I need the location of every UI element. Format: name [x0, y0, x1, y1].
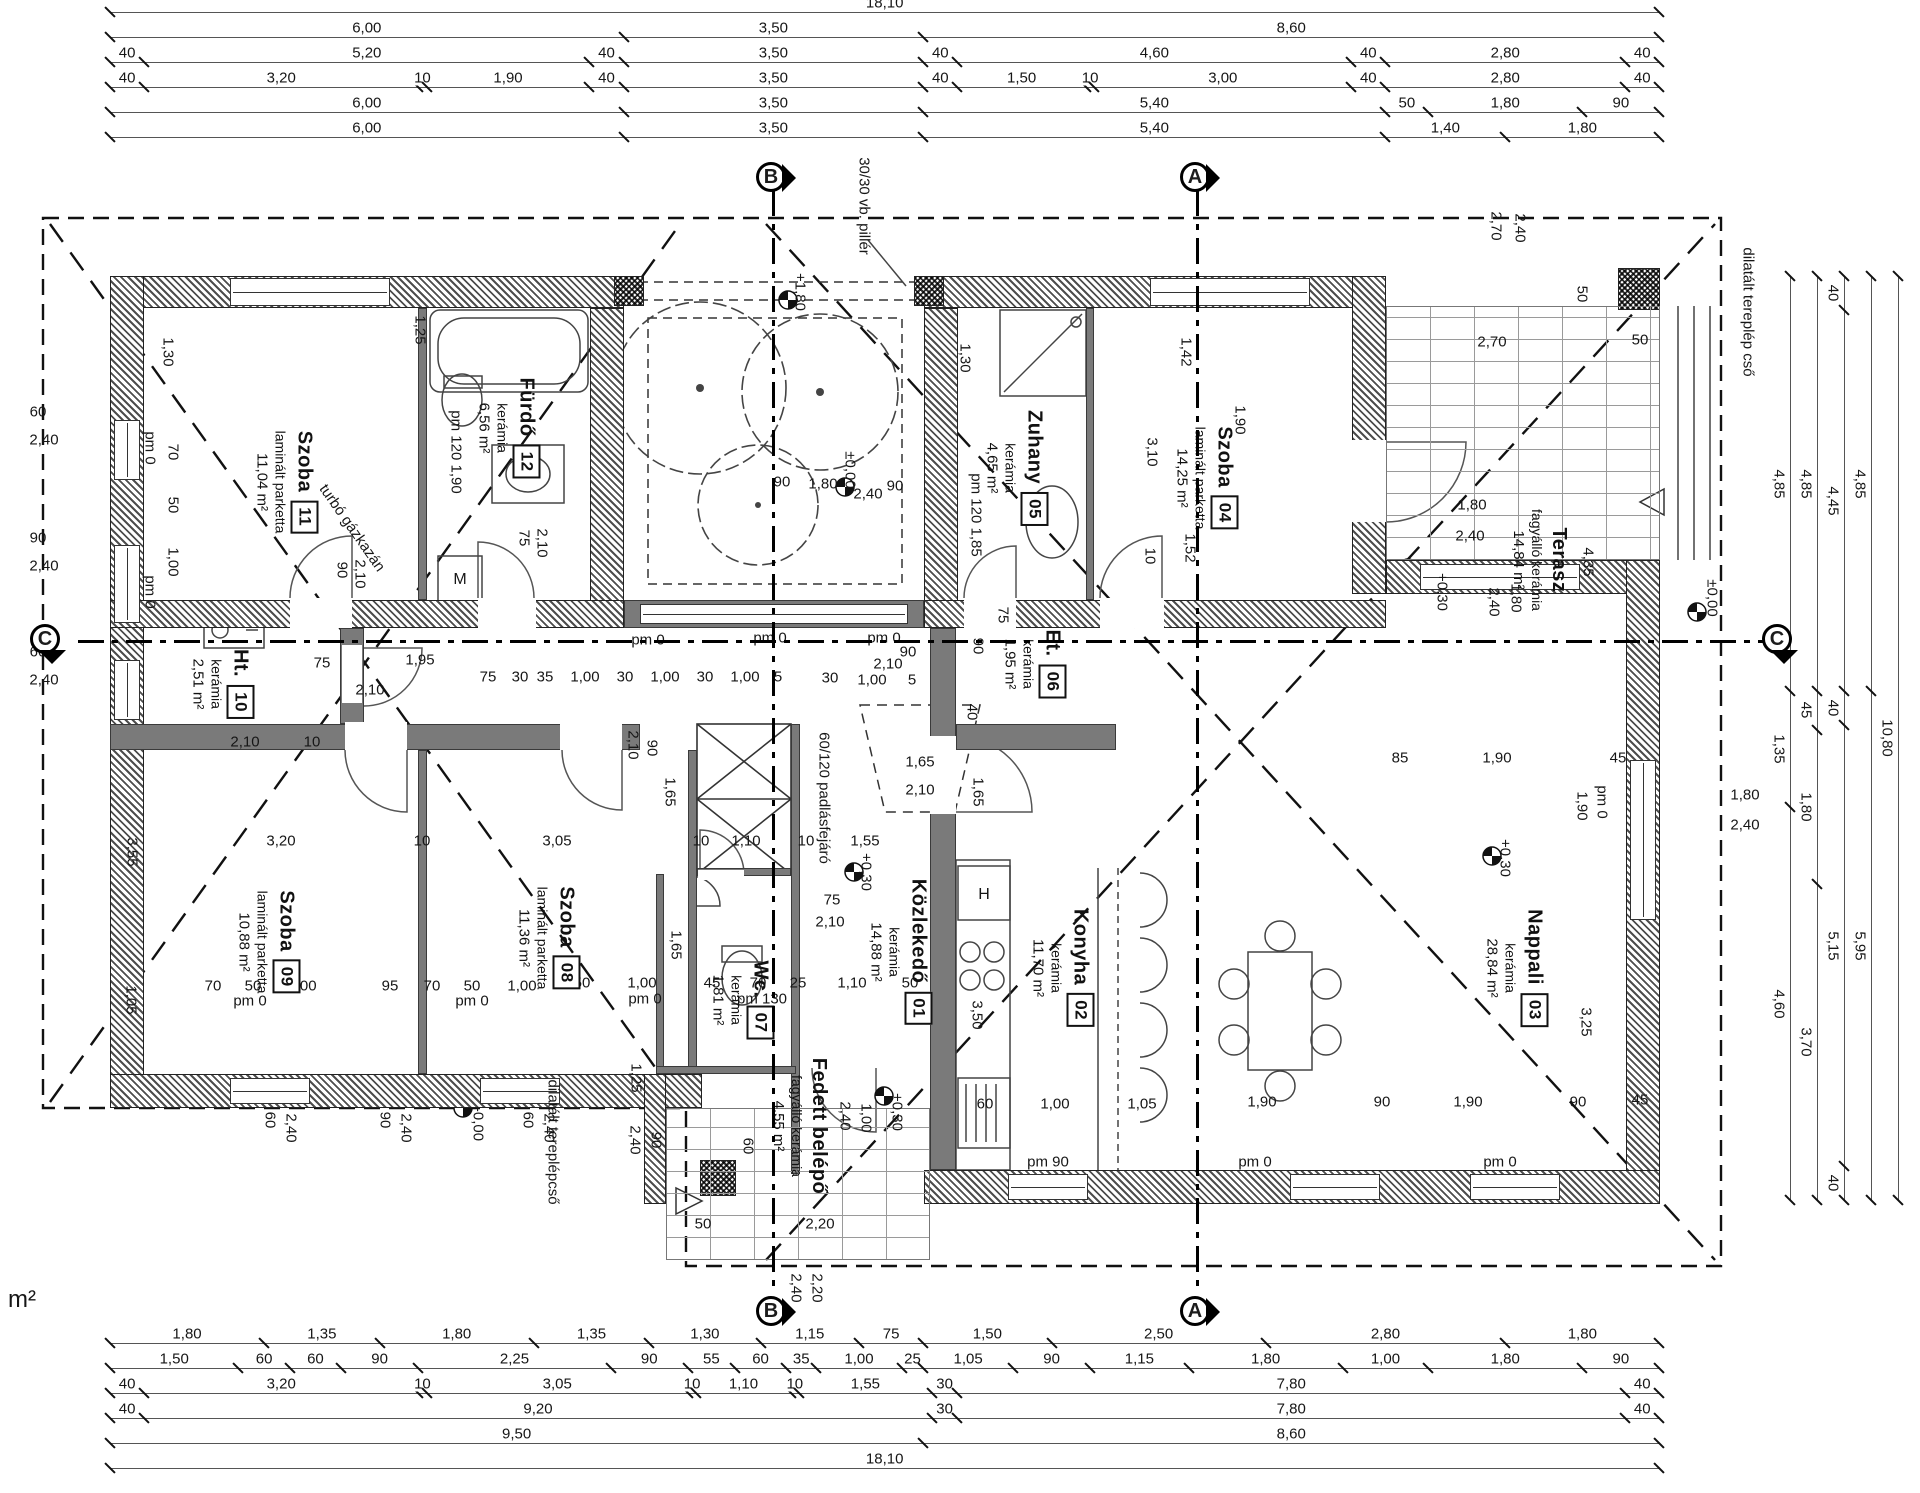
dim-label: 3,70 [1799, 1026, 1814, 1059]
room-area: 28,84 m² [1484, 909, 1501, 1027]
room-number-box: 05 [1021, 492, 1049, 526]
dim-label: 1,10 [727, 1377, 760, 1392]
annotation: 1,65 [669, 930, 684, 959]
dim-label: 1,80 [1799, 790, 1814, 823]
window [1150, 278, 1310, 306]
axis-line [78, 640, 1768, 643]
annotation: -0,00 [471, 1107, 486, 1141]
annotation: 3,55 [125, 837, 140, 866]
annotation: 1,42 [1179, 337, 1194, 366]
window [114, 660, 140, 720]
annotation: 90 [378, 1112, 393, 1129]
wall-segment [956, 724, 1116, 750]
room-area: 6,56 m² [476, 377, 493, 478]
dimension-chain [110, 87, 1659, 88]
annotation: 3,50 [970, 1000, 985, 1029]
tree-symbols [614, 302, 898, 565]
axis-marker-C: C [30, 624, 64, 658]
annotation: 1,90 [1482, 751, 1511, 766]
annotation: pm 0 [233, 994, 266, 1009]
dim-label: 40 [1632, 1402, 1653, 1417]
dim-label: 1,80 [440, 1327, 473, 1342]
annotation: pm 0 [867, 631, 900, 646]
door-opening [560, 722, 622, 750]
annotation: 50 [695, 1217, 712, 1232]
annotation: +0,30 [1435, 573, 1450, 611]
annotation: 1,00 [570, 670, 599, 685]
annotation: 50 [1575, 286, 1590, 303]
pillar [614, 276, 644, 306]
dimension-chain [1844, 276, 1845, 1200]
door-arcs [290, 442, 1466, 1132]
dim-label: 8,60 [1275, 21, 1308, 36]
annotation: 10 [304, 735, 321, 750]
annotation: 1,65 [663, 777, 678, 806]
window [114, 545, 140, 623]
dim-label: 1,80 [170, 1327, 203, 1342]
annotation: 1,00 [166, 547, 181, 576]
room-label: Szoba04laminált parketta14,25 m² [1174, 426, 1239, 529]
door-opening [1100, 598, 1164, 628]
annotation: pm 0 [143, 431, 158, 464]
dim-label: 4,85 [1853, 467, 1868, 500]
dim-label: 9,50 [500, 1427, 533, 1442]
dim-label: 40 [1632, 71, 1653, 86]
annotation: M [453, 572, 466, 588]
room-label: Ht.10kerámia2,51 m² [190, 649, 255, 719]
annotation: 60 [977, 1097, 994, 1112]
annotation: 75 [480, 670, 497, 685]
annotation: 95 [382, 979, 399, 994]
annotation: 5 [774, 670, 782, 685]
dim-label: 1,50 [971, 1327, 1004, 1342]
dim-label: 40 [930, 71, 951, 86]
dimension-chain [110, 1343, 1659, 1344]
axis-line [772, 190, 775, 1292]
annotation: 1,30 [958, 343, 973, 372]
wall-segment [688, 750, 697, 1074]
annotation: 1,80 [808, 477, 837, 492]
pillar [1618, 268, 1660, 310]
dim-label: 90 [369, 1352, 390, 1367]
dim-label: 40 [1358, 71, 1379, 86]
room-area: 11,36 m² [516, 886, 533, 989]
annotation: 30 [697, 670, 714, 685]
annotation: 2,10 [626, 730, 641, 759]
annotation: 10 [1143, 548, 1158, 565]
wall-segment [110, 1074, 702, 1108]
wall-segment [1352, 276, 1386, 594]
room-finish: laminált parketta [1193, 426, 1209, 529]
dim-label: 3,20 [265, 71, 298, 86]
dim-label: 1,80 [1566, 1327, 1599, 1342]
room-number-box: 11 [291, 500, 319, 533]
annotation: 90 [887, 479, 904, 494]
dim-label: 1,40 [1429, 121, 1462, 136]
annotation: 90 [645, 740, 660, 757]
dimension-chain [110, 12, 1659, 13]
annotation: 2,10 [230, 735, 259, 750]
room-finish: kerámia [495, 377, 511, 478]
axis-flag-icon [1770, 650, 1798, 664]
dim-label: 40 [596, 46, 617, 61]
dim-label: 1,35 [305, 1327, 338, 1342]
dim-label: 5,95 [1853, 929, 1868, 962]
wall-segment [930, 628, 956, 1170]
room-label: Zuhany05kerámia4,65 m² [984, 410, 1049, 526]
annotation: +1,80 [793, 273, 808, 311]
dim-label: 4,60 [1138, 46, 1171, 61]
dim-label: 40 [1632, 1377, 1653, 1392]
axis-marker-B: B [756, 1296, 790, 1330]
annotation: +0,30 [890, 1093, 905, 1131]
room-name: Szoba04 [1211, 426, 1239, 529]
window [1008, 1174, 1088, 1200]
annotation: 35 [537, 670, 554, 685]
axis-flag-icon [38, 650, 66, 664]
dim-label: 60 [305, 1352, 326, 1367]
annotation: 2,70 [1489, 211, 1504, 240]
dim-label: 1,15 [793, 1327, 826, 1342]
room-name: Szoba11 [291, 431, 319, 534]
room-label: Fürdő12kerámia6,56 m² [476, 377, 541, 478]
wall-segment [1086, 308, 1094, 600]
pillar [914, 276, 944, 306]
annotation: 2,40 [284, 1113, 299, 1142]
annotation: +0,30 [1498, 839, 1513, 877]
annotation: 60/120 padlásfejáró [817, 732, 832, 864]
room-label: Szoba11laminált parketta11,04 m² [254, 431, 319, 534]
dim-label: 1,50 [158, 1352, 191, 1367]
annotation: 2,10 [873, 657, 902, 672]
dim-label: 1,80 [1566, 121, 1599, 136]
annotation: 3,25 [1579, 1007, 1594, 1036]
dim-label: 40 [117, 1402, 138, 1417]
room-name: Konyha02 [1067, 909, 1095, 1027]
attic-shaft [697, 724, 791, 874]
dimension-chain [110, 1443, 1659, 1444]
door-opening [290, 598, 352, 628]
annotation: 2,10 [535, 528, 550, 557]
room-label: Szoba09laminált parketta10,88 m² [236, 890, 301, 993]
room-finish: kerámia [1049, 909, 1065, 1027]
annotation: pm 120 1,90 [449, 410, 464, 493]
annotation: 50 [166, 497, 181, 514]
room-name: Ht.10 [227, 649, 255, 719]
dimension-chain [1790, 276, 1791, 1200]
dim-label: 1,90 [491, 71, 524, 86]
window [230, 1078, 310, 1104]
door-opening [930, 736, 956, 814]
axis-marker-C: C [1762, 624, 1796, 658]
annotation: 25 [790, 976, 807, 991]
dim-label: 18,10 [864, 0, 906, 11]
wall-segment [110, 600, 624, 628]
room-finish: kerámia [1003, 410, 1019, 526]
annotation: 1,65 [971, 777, 986, 806]
axis-line [1196, 190, 1199, 1292]
annotation: pm 120 1,85 [969, 473, 984, 556]
annotation: 1,55 [850, 834, 879, 849]
dim-label: 4,60 [1772, 987, 1787, 1020]
dim-label: 1,55 [849, 1377, 882, 1392]
window [1470, 1174, 1560, 1200]
wall-segment [656, 874, 664, 1074]
room-area: 11,70 m² [1030, 909, 1047, 1027]
annotation: 1,90 [1453, 1095, 1482, 1110]
annotation: 5 [908, 673, 916, 688]
dim-label: 40 [596, 71, 617, 86]
annotation: 1,00 [650, 670, 679, 685]
annotation: 90 [30, 531, 47, 546]
annotation: 1,95 [405, 653, 434, 668]
window [1630, 760, 1656, 920]
annotation: 3,05 [542, 834, 571, 849]
annotation: 30/30 vb. pillér [857, 157, 872, 255]
annotation: 60 [521, 1112, 536, 1129]
dim-label: 1,80 [1489, 96, 1522, 111]
dim-label: 3,50 [757, 96, 790, 111]
dim-label: 40 [1826, 283, 1841, 304]
dim-label: 9,20 [521, 1402, 554, 1417]
axis-flag-icon [1206, 1298, 1220, 1326]
annotation: 30 [617, 670, 634, 685]
annotation: 45 [1632, 1093, 1649, 1108]
room-number-box: 01 [905, 991, 933, 1025]
annotation: 1,65 [905, 755, 934, 770]
annotation: 2,40 [628, 1125, 643, 1154]
dim-label: 40 [117, 1377, 138, 1392]
annotation: 30 [822, 671, 839, 686]
room-label: Fedett belépőfagyálló kerámia4,55 m² [770, 1058, 830, 1195]
dim-label: 1,05 [952, 1352, 985, 1367]
dimension-chain [1871, 276, 1872, 1200]
annotation: dilatált tereplép cső [1741, 247, 1756, 376]
annotation: 90 [774, 475, 791, 490]
annotation: 75 [996, 607, 1011, 624]
annotation: 75 [824, 893, 841, 908]
annotation: pm 90 [1027, 1155, 1069, 1170]
annotation: 30 [512, 670, 529, 685]
dimension-chain [110, 37, 1659, 38]
annotation: 60 [741, 1138, 756, 1155]
room-label: Konyha02kerámia11,70 m² [1030, 909, 1095, 1027]
annotation: 4,35 [1581, 547, 1596, 576]
room-area: 1,81 m² [710, 961, 727, 1040]
annotation: 1,00 [730, 670, 759, 685]
room-label: Wc.07kerámia1,81 m² [710, 961, 775, 1040]
dim-label: 3,50 [757, 71, 790, 86]
room-area: 11,04 m² [254, 431, 271, 534]
dimension-chain [110, 1393, 1659, 1394]
room-name: Fedett belépő [807, 1058, 830, 1195]
annotation: 10 [798, 834, 815, 849]
annotation: 70 [205, 979, 222, 994]
annotation: 2,40 [838, 1101, 853, 1130]
room-name: Fürdő12 [513, 377, 541, 478]
window [1290, 1174, 1380, 1200]
dim-label: 4,85 [1772, 467, 1787, 500]
annotation: 2,10 [905, 783, 934, 798]
annotation: 2,40 [29, 433, 58, 448]
annotation: 1,80 [1730, 788, 1759, 803]
floor-plan: 18,106,003,508,60405,20403,50404,60402,8… [0, 0, 1920, 1493]
room-name: Szoba09 [273, 890, 301, 993]
dim-label: 6,00 [350, 96, 383, 111]
axis-flag-icon [1206, 164, 1220, 192]
dim-label: 6,00 [350, 121, 383, 136]
annotation: 1,10 [731, 834, 760, 849]
window [114, 420, 140, 480]
dim-label: 4,85 [1799, 467, 1814, 500]
room-finish: kerámia [1503, 909, 1519, 1027]
annotation: 1,00 [1040, 1097, 1069, 1112]
dimension-chain [110, 1418, 1659, 1419]
dim-label: 3,05 [541, 1377, 574, 1392]
dim-label: 7,80 [1275, 1402, 1308, 1417]
annotation: 60 [30, 405, 47, 420]
annotation: 2,20 [805, 1217, 834, 1232]
dim-label: 3,00 [1206, 71, 1239, 86]
dimension-chain [110, 137, 1659, 138]
annotation: 3,10 [1145, 437, 1160, 466]
dim-label: 4,45 [1826, 484, 1841, 517]
dim-label: 1,50 [1005, 71, 1038, 86]
annotation: 70 [166, 444, 181, 461]
room-area: 14,25 m² [1174, 426, 1191, 529]
annotation: 1,80 [1457, 498, 1486, 513]
annotation: ±0,00 [1705, 579, 1720, 616]
room-finish: fagyálló kerámia [1529, 509, 1545, 611]
room-area: 10,88 m² [236, 890, 253, 993]
dim-label: 75 [881, 1327, 902, 1342]
dim-label: 40 [117, 46, 138, 61]
dim-label: 50 [1396, 96, 1417, 111]
room-name: Zuhany05 [1021, 410, 1049, 526]
annotation: 1,25 [629, 1063, 644, 1092]
annotation: 2,40 [1455, 529, 1484, 544]
room-name: Terasz [1547, 509, 1570, 611]
wall-segment [418, 308, 427, 600]
room-name: Közlekedő01 [905, 879, 933, 1025]
annotation: 1,05 [1127, 1097, 1156, 1112]
room-name: Szoba08 [553, 886, 581, 989]
dim-label: 10,80 [1880, 717, 1895, 759]
annotation: m² [8, 1288, 36, 1312]
dim-label: 5,40 [1138, 121, 1171, 136]
dim-label: 3,50 [757, 46, 790, 61]
dim-label: 40 [1826, 1173, 1841, 1194]
annotation: 2,40 [853, 487, 882, 502]
dim-label: 2,50 [1142, 1327, 1175, 1342]
dim-label: 7,80 [1275, 1377, 1308, 1392]
room-finish: kerámia [729, 961, 745, 1040]
annotation: 1,00 [627, 976, 656, 991]
dim-label: 2,80 [1489, 71, 1522, 86]
room-finish: kerámia [209, 649, 225, 719]
annotation: pm 0 [628, 992, 661, 1007]
room-area: 14,84 m² [1510, 509, 1527, 611]
room-number-box: 04 [1211, 496, 1239, 530]
room-finish: kerámia [887, 879, 903, 1025]
dim-label: 40 [1826, 698, 1841, 719]
annotation: 10 [693, 834, 710, 849]
room-number-box: 03 [1521, 993, 1549, 1027]
annotation: 90 [1570, 1095, 1587, 1110]
annotation: 50 [1632, 333, 1649, 348]
annotation: 2,40 [1487, 587, 1502, 616]
annotation: 1,00 [859, 1103, 874, 1132]
dim-label: 1,00 [1369, 1352, 1402, 1367]
annotation: ±0,00 [843, 451, 858, 488]
door-opening [1352, 440, 1386, 522]
room-name: Wc.07 [747, 961, 775, 1040]
annotation: 2,40 [1513, 213, 1528, 242]
dim-label: 40 [930, 46, 951, 61]
annotation: 1,05 [124, 985, 139, 1014]
axis-flag-icon [782, 164, 796, 192]
dim-label: 1,80 [1249, 1352, 1282, 1367]
wall-segment [418, 750, 427, 1074]
annotation: 2,40 [399, 1113, 414, 1142]
door-opening [345, 722, 407, 750]
dim-label: 8,60 [1275, 1427, 1308, 1442]
dim-label: 2,25 [498, 1352, 531, 1367]
annotation: 1,25 [413, 315, 428, 344]
dim-label: 60 [254, 1352, 275, 1367]
room-number-box: 12 [513, 445, 541, 479]
room-label: Szoba08laminált parketta11,36 m² [516, 886, 581, 989]
annotation: pm 0 [455, 994, 488, 1009]
room-finish: laminált parketta [535, 886, 551, 989]
annotation: 1,90 [1247, 1095, 1276, 1110]
dim-label: 2,80 [1489, 46, 1522, 61]
wall-segment [924, 308, 958, 608]
annotation: 85 [1392, 751, 1409, 766]
room-number-box: 10 [227, 685, 255, 719]
dim-label: 1,35 [1772, 732, 1787, 765]
dim-label: 45 [1799, 700, 1814, 721]
dim-label: 6,00 [350, 21, 383, 36]
dim-label: 40 [1632, 46, 1653, 61]
dim-label: 3,20 [265, 1377, 298, 1392]
wall-segment [590, 308, 624, 608]
annotation: 90 [335, 562, 350, 579]
dim-label: 1,00 [842, 1352, 875, 1367]
annotation: 2,40 [1730, 818, 1759, 833]
annotation: 90 [649, 1132, 664, 1149]
annotation: 10 [414, 834, 431, 849]
dim-label: 1,80 [1489, 1352, 1522, 1367]
door-opening [478, 598, 536, 628]
axis-flag-icon [782, 1298, 796, 1326]
room-area: 2,51 m² [190, 649, 207, 719]
annotation: pm 0 [1238, 1155, 1271, 1170]
dim-label: 5,20 [350, 46, 383, 61]
annotation: 1,00 [857, 673, 886, 688]
dim-label: 1,15 [1123, 1352, 1156, 1367]
dim-label: 90 [639, 1352, 660, 1367]
dim-label: 1,30 [688, 1327, 721, 1342]
annotation: 75 [517, 530, 532, 547]
annotation: pm 0 [1595, 785, 1610, 818]
annotation: 1,30 [161, 337, 176, 366]
annotation: pm 0 [143, 575, 158, 608]
annotation: 70 [424, 979, 441, 994]
annotation: 2,40 [29, 673, 58, 688]
room-label: Nappali03kerámia28,84 m² [1484, 909, 1549, 1027]
dim-label: 35 [791, 1352, 812, 1367]
